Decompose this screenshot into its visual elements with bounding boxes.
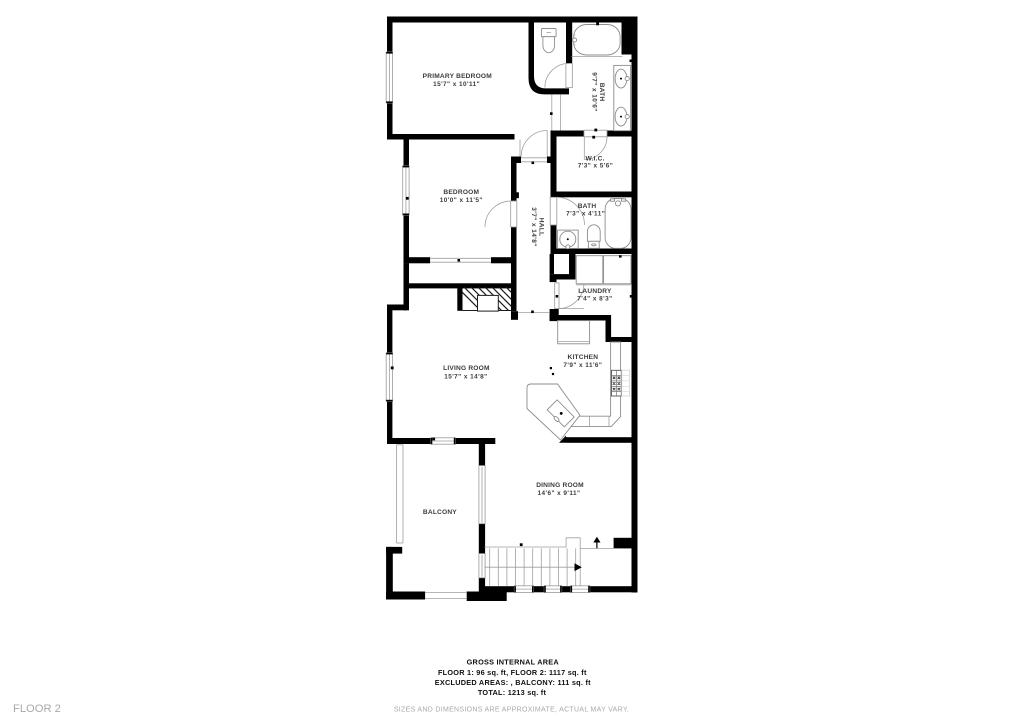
svg-text:7'3" x 5'6": 7'3" x 5'6" xyxy=(578,163,613,170)
svg-text:HALL: HALL xyxy=(538,218,545,236)
svg-text:EXCLUDED AREAS: , BALCONY: 111: EXCLUDED AREAS: , BALCONY: 111 sq. ft xyxy=(435,678,591,687)
svg-text:TOTAL: 1213 sq. ft: TOTAL: 1213 sq. ft xyxy=(478,688,547,697)
svg-text:BALCONY: BALCONY xyxy=(423,509,457,516)
svg-text:7'4" x 8'3": 7'4" x 8'3" xyxy=(577,296,612,303)
svg-text:FLOOR 2: FLOOR 2 xyxy=(13,703,61,715)
svg-text:GROSS INTERNAL AREA: GROSS INTERNAL AREA xyxy=(467,658,560,667)
svg-text:15'7" x 14'8": 15'7" x 14'8" xyxy=(444,373,487,380)
svg-text:BATH: BATH xyxy=(578,203,597,210)
svg-text:7'9" x 11'6": 7'9" x 11'6" xyxy=(563,362,602,369)
svg-text:7'3" x 4'11": 7'3" x 4'11" xyxy=(566,211,605,218)
svg-text:LIVING ROOM: LIVING ROOM xyxy=(443,365,490,372)
svg-text:PRIMARY BEDROOM: PRIMARY BEDROOM xyxy=(423,73,493,80)
svg-text:DINING ROOM: DINING ROOM xyxy=(536,482,584,489)
svg-text:BATH: BATH xyxy=(598,83,605,102)
svg-text:3'7" x 14'8": 3'7" x 14'8" xyxy=(530,207,537,246)
svg-text:KITCHEN: KITCHEN xyxy=(568,354,599,361)
svg-text:BEDROOM: BEDROOM xyxy=(443,189,479,196)
svg-text:15'7" x 10'11": 15'7" x 10'11" xyxy=(433,81,480,88)
svg-text:FLOOR 1: 96 sq. ft, FLOOR 2: 1: FLOOR 1: 96 sq. ft, FLOOR 2: 1117 sq. ft xyxy=(438,668,587,677)
svg-text:LAUNDRY: LAUNDRY xyxy=(578,288,612,295)
svg-text:SIZES AND DIMENSIONS ARE APPRO: SIZES AND DIMENSIONS ARE APPROXIMATE, AC… xyxy=(394,706,629,713)
svg-text:W.I.C.: W.I.C. xyxy=(586,156,605,163)
svg-text:9'7" x 10'6": 9'7" x 10'6" xyxy=(591,72,598,111)
svg-text:10'0" x 11'5": 10'0" x 11'5" xyxy=(440,197,483,204)
svg-text:14'6" x 9'11": 14'6" x 9'11" xyxy=(537,490,580,497)
